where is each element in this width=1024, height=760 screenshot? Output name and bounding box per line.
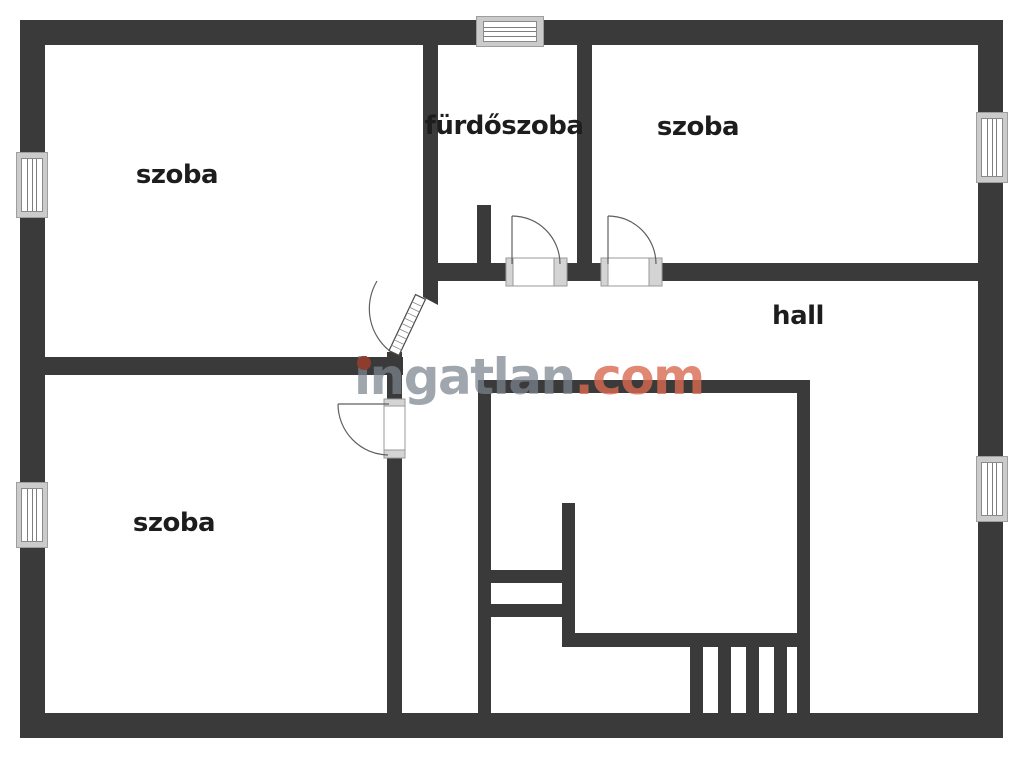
window-room1-left [16,152,48,218]
window-glazing [21,488,43,542]
wall-room1-bathroom-divider [423,45,438,293]
window-hall-right [976,456,1008,522]
stair-tread [491,570,562,583]
window-room2-right [976,112,1008,183]
door-hall-diagonal [369,281,425,355]
stairwell-wall-right [797,380,810,713]
wall-hall-north-seg1 [438,263,506,281]
window-room3-left [16,482,48,548]
room-label-top-left: szoba [136,160,218,190]
stairwell-wall-bottom [562,633,810,647]
watermark-i-dot-icon [357,356,371,370]
room-label-hall: hall [772,301,824,331]
wall-bathroom-stub [477,205,491,263]
window-bathroom-top [476,16,544,47]
wall-room3-east-lower [387,458,402,713]
window-glazing [483,21,537,42]
door-room3 [338,399,405,458]
stairwell-wall-left [478,380,491,713]
room-label-bottom-left: szoba [133,508,215,538]
wall-hall-north-seg3 [662,263,978,281]
door-room2 [601,216,662,286]
stair-tread [774,647,787,713]
floor-plan-canvas: szoba fürdőszoba szoba hall szoba ingatl… [0,0,1024,760]
door-bathroom [506,216,567,286]
stair-tread [718,647,731,713]
wall-bathroom-room2-divider [577,45,592,263]
window-glazing [981,118,1003,177]
room-label-bathroom: fürdőszoba [425,111,584,141]
watermark: ingatlan.com [354,352,704,402]
wall-hall-north-seg2 [567,263,601,281]
watermark-brand: ingatlan [354,348,575,406]
room-label-top-right: szoba [657,112,739,142]
stair-tread [690,647,703,713]
stair-tread [491,604,562,617]
wall-room1-south [45,357,403,375]
watermark-tld: .com [575,348,704,406]
wall-outer-bottom [20,713,1003,738]
stairwell-wall-center [562,503,575,647]
window-glazing [981,462,1003,516]
window-glazing [21,158,43,212]
wall-outer-left [20,20,45,738]
stair-tread [746,647,759,713]
